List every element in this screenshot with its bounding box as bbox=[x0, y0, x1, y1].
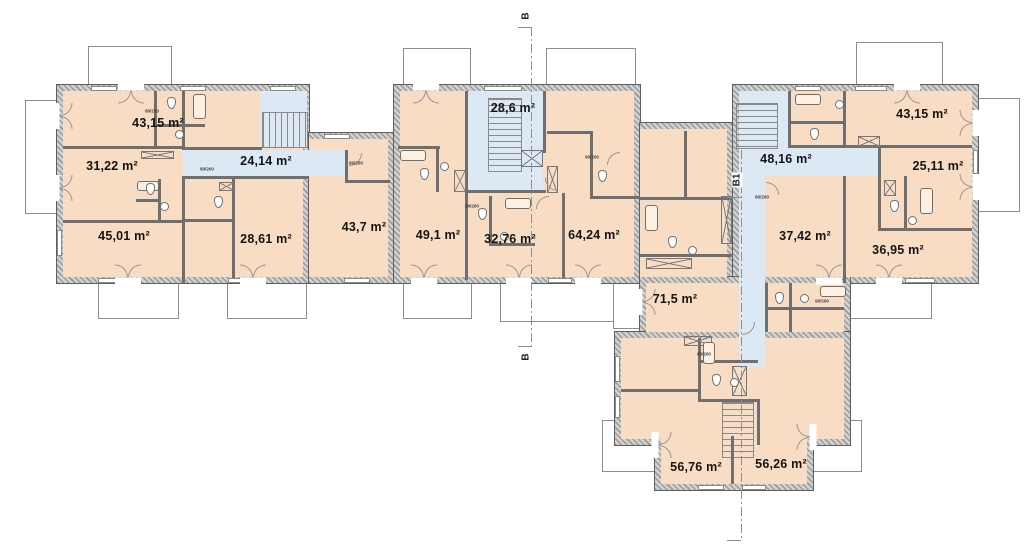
shaft-box bbox=[858, 136, 880, 147]
window bbox=[484, 86, 522, 91]
partition-wall bbox=[182, 176, 185, 283]
bathtub-icon bbox=[820, 286, 846, 297]
double-door bbox=[797, 424, 810, 450]
partition-wall bbox=[547, 131, 593, 134]
door-size-tag: 80/200 bbox=[200, 168, 214, 173]
terrace-outline bbox=[500, 283, 615, 322]
section-line-b bbox=[531, 27, 532, 347]
door-size-tag: 90/200 bbox=[585, 156, 599, 161]
shaft-box bbox=[884, 180, 896, 196]
partition-wall bbox=[562, 193, 565, 280]
sink-icon bbox=[835, 100, 844, 109]
window bbox=[855, 86, 887, 91]
area-label: 36,95 m² bbox=[872, 243, 924, 257]
balcony-outline bbox=[546, 48, 636, 88]
area-label: 43,15 m² bbox=[132, 116, 184, 130]
sink-icon bbox=[440, 162, 449, 171]
window bbox=[57, 230, 62, 256]
shaft-box bbox=[219, 182, 234, 191]
window bbox=[742, 485, 766, 490]
section-label-b-bottom: B bbox=[521, 352, 532, 361]
balcony-outline bbox=[227, 283, 307, 319]
partition-wall bbox=[878, 228, 972, 231]
balcony-outline bbox=[403, 283, 472, 319]
double-door bbox=[894, 91, 920, 104]
area-label: 31,22 m² bbox=[86, 159, 138, 173]
section-tick bbox=[727, 197, 741, 198]
partition-wall bbox=[63, 220, 185, 223]
double-door bbox=[506, 265, 532, 278]
double-door bbox=[413, 91, 439, 104]
partition-wall bbox=[590, 196, 640, 199]
window bbox=[91, 86, 117, 91]
sink-icon bbox=[160, 202, 169, 211]
partition-wall bbox=[843, 91, 846, 147]
area-label: 43,7 m² bbox=[342, 220, 386, 234]
partition-wall bbox=[398, 146, 440, 149]
door-size-tag: 80/200 bbox=[755, 196, 769, 201]
area-label: 24,14 m² bbox=[240, 154, 292, 168]
sink-icon bbox=[908, 216, 917, 225]
area-label: 37,42 m² bbox=[779, 229, 831, 243]
window bbox=[615, 396, 620, 418]
door-size-tag: 90/200 bbox=[815, 300, 829, 305]
partition-wall bbox=[698, 338, 701, 402]
window bbox=[698, 485, 724, 490]
section-label-b-top: B bbox=[521, 11, 532, 20]
partition-wall bbox=[843, 176, 846, 283]
door-size-tag: 80/200 bbox=[349, 162, 363, 167]
window bbox=[548, 278, 572, 283]
door-size-tag: 80/200 bbox=[697, 353, 711, 358]
partition-wall bbox=[788, 91, 791, 148]
sink-icon bbox=[800, 294, 809, 303]
partition-wall bbox=[136, 199, 161, 202]
partition-wall bbox=[621, 389, 701, 392]
partition-wall bbox=[590, 134, 593, 198]
bathtub-icon bbox=[505, 198, 531, 209]
double-door bbox=[60, 103, 73, 129]
balcony-outline bbox=[403, 48, 471, 88]
window bbox=[180, 86, 206, 91]
terrace-outline bbox=[978, 98, 1020, 212]
area-label: 45,01 m² bbox=[98, 229, 150, 243]
area-label: 56,26 m² bbox=[755, 457, 807, 471]
partition-wall bbox=[183, 147, 262, 150]
partition-wall bbox=[345, 150, 348, 182]
area-label: 43,15 m² bbox=[896, 107, 948, 121]
door-size-tag: 80/200 bbox=[465, 205, 479, 210]
partition-wall bbox=[640, 197, 733, 200]
window bbox=[344, 278, 370, 283]
area-label: 32,76 m² bbox=[484, 232, 536, 246]
partition-wall bbox=[185, 219, 232, 222]
double-door bbox=[575, 265, 601, 278]
shaft-box bbox=[646, 258, 692, 269]
section-tick bbox=[727, 540, 741, 541]
window bbox=[795, 86, 821, 91]
sink-icon bbox=[688, 246, 697, 255]
floor-plan-canvas: 80/200 80/200 80/200 80/200 80/200 80/20… bbox=[0, 0, 1024, 556]
area-label: 25,11 m² bbox=[913, 159, 964, 173]
partition-wall bbox=[345, 180, 390, 183]
stair-flight bbox=[736, 103, 778, 149]
double-door bbox=[118, 91, 144, 104]
area-label: 28,6 m² bbox=[491, 101, 535, 115]
area-label: 64,24 m² bbox=[568, 228, 620, 242]
window bbox=[973, 150, 978, 174]
stair-flight bbox=[262, 112, 308, 148]
section-tick bbox=[518, 27, 532, 28]
bathtub-icon bbox=[400, 150, 426, 161]
stair-flight bbox=[722, 402, 754, 458]
door-size-tag: 80/200 bbox=[145, 110, 159, 115]
sink-icon bbox=[730, 378, 739, 387]
balcony-outline bbox=[98, 283, 179, 319]
elevator-shaft bbox=[521, 150, 543, 167]
window bbox=[905, 278, 935, 283]
double-door bbox=[960, 110, 973, 136]
area-label: 48,16 m² bbox=[760, 152, 812, 166]
partition-wall bbox=[640, 254, 733, 257]
shaft-box bbox=[721, 196, 732, 244]
section-tick bbox=[518, 346, 532, 347]
double-door bbox=[240, 265, 266, 278]
area-label: 71,5 m² bbox=[653, 292, 697, 306]
area-label: 49,1 m² bbox=[416, 228, 460, 242]
partition-wall bbox=[768, 307, 844, 310]
partition-wall bbox=[232, 179, 235, 283]
area-label: 28,61 m² bbox=[240, 232, 292, 246]
partition-wall bbox=[684, 131, 687, 197]
double-door bbox=[659, 432, 672, 458]
window bbox=[615, 356, 620, 382]
partition-wall bbox=[183, 176, 309, 179]
partition-wall bbox=[731, 436, 734, 484]
partition-wall bbox=[757, 399, 760, 445]
window bbox=[324, 134, 350, 139]
double-door bbox=[115, 265, 141, 278]
bathtub-icon bbox=[193, 94, 206, 119]
balcony-outline bbox=[856, 42, 943, 88]
partition-wall bbox=[436, 146, 439, 192]
double-door bbox=[60, 175, 73, 201]
partition-wall bbox=[466, 190, 546, 193]
double-door bbox=[960, 174, 973, 200]
balcony-outline bbox=[88, 46, 172, 88]
shaft-box bbox=[454, 170, 466, 192]
partition-wall bbox=[789, 121, 845, 124]
section-label-b1: B1 bbox=[732, 173, 743, 188]
bathtub-icon bbox=[920, 188, 933, 214]
double-door bbox=[816, 265, 842, 278]
partition-wall bbox=[700, 399, 760, 402]
partition-wall bbox=[543, 91, 546, 153]
shaft-box bbox=[141, 151, 174, 159]
partition-wall bbox=[878, 148, 881, 228]
bathtub-icon bbox=[645, 205, 658, 231]
sink-icon bbox=[175, 130, 184, 139]
double-door bbox=[876, 265, 902, 278]
window bbox=[270, 86, 296, 91]
partition-wall bbox=[904, 176, 907, 228]
double-door bbox=[411, 265, 437, 278]
partition-wall bbox=[63, 146, 183, 149]
area-label: 56,76 m² bbox=[670, 460, 722, 474]
bathtub-icon bbox=[795, 94, 821, 105]
section-line-b1 bbox=[741, 150, 742, 540]
